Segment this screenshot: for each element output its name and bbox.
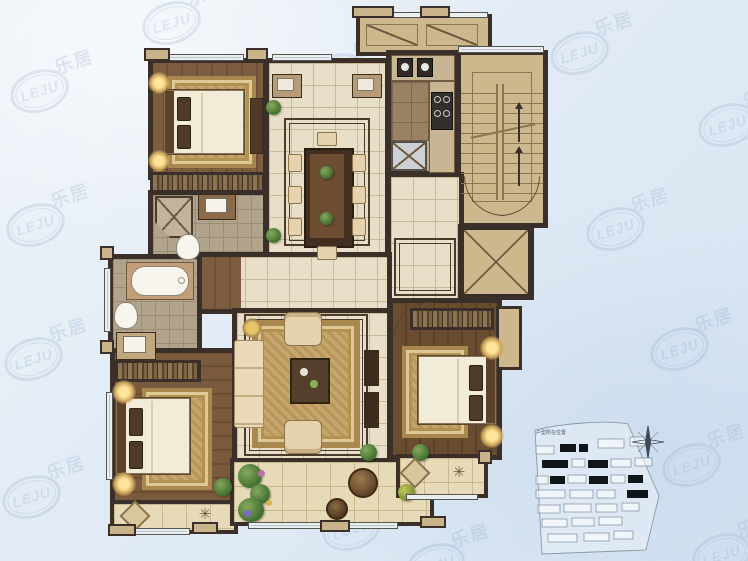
pilaster	[420, 516, 446, 528]
floor-lamp	[242, 318, 262, 338]
pilaster	[478, 450, 492, 464]
lamp-glow	[148, 72, 170, 94]
sink-basin	[401, 63, 409, 71]
siteplan-building	[564, 504, 591, 512]
toilet	[176, 234, 200, 260]
hallway-wood	[201, 257, 241, 309]
armchair	[284, 312, 322, 346]
stair-arrow-up	[518, 108, 520, 142]
dining-cabinet-top	[277, 78, 294, 91]
dining-chair	[288, 186, 302, 204]
bathtub-drain	[178, 277, 185, 284]
window	[406, 494, 478, 500]
tv-console	[364, 392, 379, 428]
terrace-flower	[266, 500, 272, 506]
siteplan-building	[611, 459, 631, 467]
dining-chair	[317, 246, 337, 260]
toilet	[114, 302, 138, 329]
plant	[266, 228, 281, 243]
burner	[443, 110, 450, 117]
siteplan-building-highlighted	[579, 444, 588, 452]
siteplan-building-highlighted	[550, 476, 565, 484]
terrace-flower	[244, 510, 251, 517]
pilaster	[144, 48, 170, 61]
bedroom-2-dresser	[250, 98, 263, 154]
siteplan-building	[598, 439, 624, 448]
pilaster	[320, 520, 350, 532]
siteplan-building	[572, 459, 585, 467]
siteplan-building	[614, 531, 633, 539]
lamp-glow	[480, 424, 504, 448]
lamp-glow	[148, 150, 170, 172]
site-plan: 户型所在位置	[512, 416, 748, 559]
kitchen-counter-left	[391, 81, 429, 141]
dining-chair	[288, 218, 302, 236]
plant	[214, 478, 232, 496]
coffee-table-decor	[310, 380, 318, 388]
pilaster	[100, 246, 114, 260]
siteplan-building	[584, 533, 609, 541]
screenshot-canvas: LEJU乐居LEJU乐居LEJU乐居LEJU乐居LEJU乐居LEJU乐居LEJU…	[0, 0, 748, 561]
window	[104, 268, 111, 332]
burner	[443, 96, 450, 103]
dining-chair	[317, 132, 337, 146]
dining-chair	[352, 154, 366, 172]
siteplan-building	[548, 534, 577, 542]
siteplan-building	[568, 475, 586, 483]
window	[458, 46, 544, 53]
siteplan-building	[536, 490, 565, 498]
siteplan-building-highlighted	[588, 460, 608, 468]
master-sink	[123, 336, 146, 353]
siteplan-building	[570, 490, 593, 498]
dining-chair	[352, 218, 366, 236]
terrace-stool	[326, 498, 348, 520]
stair-arrow-head	[515, 102, 523, 109]
kitchen-appliance	[391, 141, 427, 171]
lamp-glow	[480, 336, 504, 360]
siteplan-building-highlighted	[542, 460, 568, 468]
terrace-plant	[238, 498, 264, 522]
pilaster	[246, 48, 268, 61]
stair-arrow-head	[515, 146, 523, 153]
lamp-glow	[112, 472, 136, 496]
master-wardrobe	[115, 360, 201, 382]
siteplan-building	[597, 490, 615, 498]
master-bed	[116, 398, 190, 474]
siteplan-building	[536, 446, 554, 454]
dining-cabinet-top	[357, 78, 374, 91]
burner	[434, 96, 441, 103]
siteplan-building	[572, 518, 594, 526]
bathroom-1-sink	[205, 198, 227, 213]
tv-console	[364, 350, 379, 386]
dining-chair	[352, 186, 366, 204]
siteplan-building	[538, 505, 560, 513]
terrace-round-table	[348, 468, 378, 498]
pilaster	[420, 6, 450, 18]
pilaster	[192, 522, 218, 534]
siteplan-building	[542, 519, 567, 527]
pilaster	[108, 524, 136, 536]
sofa	[234, 340, 264, 428]
siteplan-label: 户型所在位置	[536, 429, 566, 436]
window	[106, 392, 113, 480]
ac-platform-hatch	[426, 24, 478, 46]
siteplan-building-highlighted	[589, 476, 608, 484]
armchair	[284, 420, 322, 454]
dining-chair	[288, 154, 302, 172]
plant	[360, 444, 377, 461]
siteplan-building	[622, 503, 639, 511]
siteplan-building-highlighted	[628, 475, 643, 483]
bedroom-2-bed	[164, 90, 244, 154]
window	[272, 54, 332, 61]
siteplan-building	[599, 517, 622, 525]
burner	[434, 110, 441, 117]
sink-basin	[421, 63, 429, 71]
plant	[266, 100, 281, 115]
table-plant	[320, 212, 333, 225]
table-plant	[320, 166, 333, 179]
pilaster	[352, 6, 394, 18]
siteplan-building-highlighted	[560, 444, 576, 452]
ac-platform-hatch	[366, 24, 418, 46]
terrace-flower	[258, 470, 265, 477]
lamp-glow	[112, 380, 136, 404]
siteplan-building	[611, 475, 625, 483]
siteplan-building-highlighted	[627, 490, 648, 498]
window	[166, 54, 244, 61]
elevator-shaft	[458, 224, 534, 300]
pilaster	[100, 340, 114, 354]
balcony-flower-decor: ✳	[450, 464, 468, 482]
bedroom-3-bed	[418, 356, 496, 424]
coffee-table-decor	[300, 368, 308, 376]
siteplan-building	[635, 458, 652, 466]
siteplan-building	[536, 476, 548, 484]
room-foyer	[386, 172, 464, 306]
siteplan-building	[596, 504, 617, 512]
